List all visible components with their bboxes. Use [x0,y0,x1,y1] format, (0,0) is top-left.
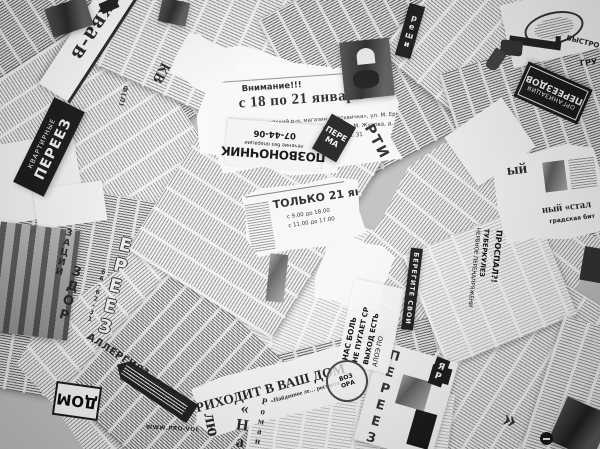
no-entry-bar [543,438,550,440]
article-photo [542,160,567,192]
phone-block [406,409,437,449]
newspaper-collage: осква-в КВ ФІЛІ реши БЫСТРО ГРУ ОРГАНИЗА… [0,0,600,449]
article-caption-lines [568,156,597,189]
typewriter-photo [339,38,395,101]
subheadline-battle: градская бит [549,213,595,226]
spine-ad-scrap: ПОЗВОНОЧНИК лечение без операции 07-44-0… [225,119,324,172]
no-entry-glyph [540,432,553,445]
dom-badge: ДОМ [52,381,102,421]
revolver-sight [555,36,561,42]
typewriter-paper [356,47,376,65]
typewriter-body [352,69,380,90]
badge-dom: ДОМ [55,389,98,413]
text-yy-fragment: ый [506,161,528,180]
ad-photo [395,374,432,411]
spine-phone: 07-44-06 [253,128,296,141]
steel-article-scrap: ый ный «стал градская бит [491,140,600,247]
text-gru-fragment: ГРУ [580,57,598,68]
